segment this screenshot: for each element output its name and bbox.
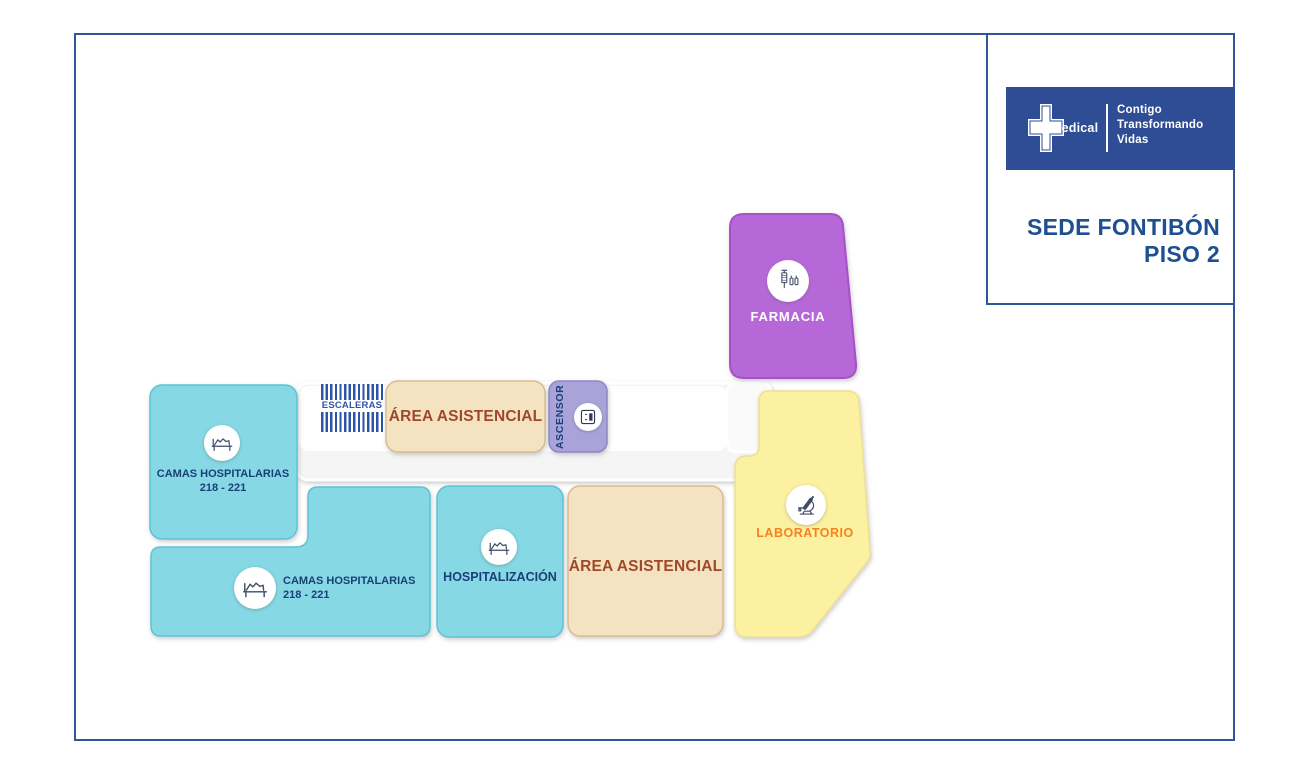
area-asistencial-norte-label: ÁREA ASISTENCIAL [384, 408, 547, 426]
microscope-icon [786, 485, 826, 525]
pharmacy-icon [767, 260, 809, 302]
stairs-hatch-top [321, 384, 383, 400]
stairs-hatch-bottom [321, 412, 383, 432]
escaleras-area: ESCALERAS [321, 384, 383, 434]
room-label: CAMAS HOSPITALARIAS [283, 575, 443, 589]
ascensor-label: ASCENSOR [552, 381, 568, 452]
area-asistencial-sur-label: ÁREA ASISTENCIAL [566, 558, 725, 576]
bed-icon [481, 529, 517, 565]
camas-b-label-group: CAMAS HOSPITALARIAS 218 - 221 [283, 575, 443, 602]
floor-plan-page: Medical Contigo Transformando Vidas SEDE… [0, 0, 1301, 761]
floor-plan-svg [0, 0, 1301, 761]
bed-icon [204, 425, 240, 461]
camas-a-label-group: CAMAS HOSPITALARIAS 218 - 221 [146, 468, 300, 495]
room-sublabel: 218 - 221 [283, 589, 443, 603]
room-label: CAMAS HOSPITALARIAS [146, 468, 300, 482]
room-sublabel: 218 - 221 [146, 482, 300, 496]
hospitalizacion-label: HOSPITALIZACIÓN [435, 570, 565, 584]
farmacia-label: FARMACIA [726, 309, 850, 324]
escaleras-label: ESCALERAS [321, 400, 383, 412]
elevator-icon [574, 403, 602, 431]
bed-icon [234, 567, 276, 609]
laboratorio-label: LABORATORIO [734, 526, 876, 540]
room-camas-hospitalarias-a [150, 385, 297, 539]
